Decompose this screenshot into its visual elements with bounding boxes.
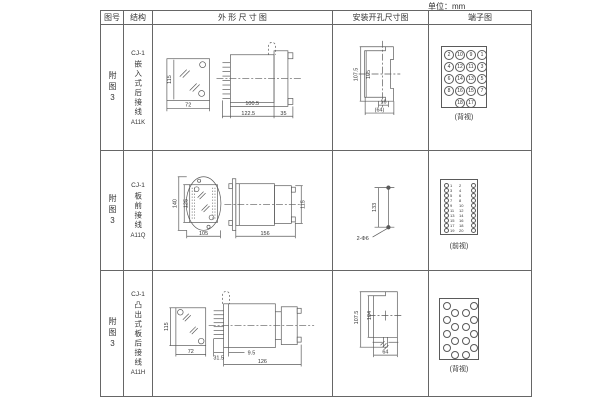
- terminal-circle: 13: [466, 74, 476, 84]
- cell-mount-row2: 133 2-Φ6: [333, 151, 429, 271]
- cell-terminal-row1: 210914121136141358161571817 (背视): [429, 25, 531, 151]
- mount-drawing-row1: 107.5 105 16 (64): [333, 25, 428, 150]
- dim-inner-height: 125: [184, 199, 190, 208]
- dim-outer-height: 140: [172, 199, 178, 208]
- cell-mount-row1: 107.5 105 16 (64): [333, 25, 429, 151]
- terminal-circle: [451, 309, 459, 317]
- terminal-circle: 7: [477, 86, 487, 96]
- side-view: 31.5 9.5 126: [209, 291, 314, 366]
- header-outline: 外 形 尺 寸 图: [153, 11, 333, 25]
- terminal-circle: [470, 330, 478, 338]
- dim-width: 64: [382, 350, 388, 356]
- structure-desc: 凸出式板后接线: [134, 301, 142, 368]
- dim-width: 72: [185, 102, 191, 108]
- terminal-circle: 6: [444, 74, 454, 84]
- cell-fig-row2: 附图3: [101, 151, 124, 271]
- terminal-circle: [443, 316, 451, 324]
- header-struct: 结构: [124, 11, 153, 25]
- cell-fig-row1: 附图3: [101, 25, 124, 151]
- terminal-circle: 18: [455, 98, 465, 108]
- terminal-board: 1234567891011121314151617181920: [440, 179, 478, 235]
- terminal-circle: 11: [466, 62, 476, 72]
- figure-number: 附图3: [108, 71, 116, 105]
- outline-drawing-row1: 115 72: [153, 25, 332, 150]
- header-fig: 图号: [101, 11, 124, 25]
- terminal-circle: [470, 344, 478, 352]
- cell-outline-row1: 115 72: [153, 25, 333, 151]
- terminal-circle: 16: [455, 86, 465, 96]
- cell-struct-row1: CJ-1 嵌入式后接线 A11K: [124, 25, 153, 151]
- terminal-circle: 4: [444, 62, 454, 72]
- spec-table: 图号 结构 外 形 尺 寸 图 安装开孔尺寸图 端子图 附图3 CJ-1 嵌入式…: [100, 10, 532, 397]
- outline-drawing-row3: 115 72: [153, 271, 332, 396]
- dim-flange: 35: [280, 111, 286, 117]
- terminal-circle: 12: [455, 62, 465, 72]
- dim-hole-spacing: 133: [372, 203, 378, 212]
- type-code: A11Q: [131, 233, 146, 239]
- terminal-circle: 17: [466, 98, 476, 108]
- type-code: A11K: [131, 120, 145, 126]
- dim-height: 115: [164, 322, 170, 331]
- mount-drawing-row2: 133 2-Φ6: [333, 151, 428, 270]
- terminal-circle: [462, 337, 470, 345]
- terminal-circle: 1: [477, 50, 487, 60]
- front-view: 115 72: [167, 59, 210, 112]
- dim-slot-width: 16: [380, 100, 386, 106]
- dim-width: 72: [188, 349, 194, 355]
- cell-fig-row3: 附图3: [101, 271, 124, 396]
- terminal-caption: (背视): [431, 364, 487, 374]
- terminal-circle: 8: [444, 86, 454, 96]
- dim-inner-height: 105: [366, 70, 372, 79]
- dim-total-length: 122.5: [241, 111, 255, 117]
- dim-body-length: 100.5: [245, 101, 259, 107]
- terminal-board: [439, 298, 479, 360]
- cell-terminal-row3: (背视): [429, 271, 531, 396]
- header-terminal: 端子图: [429, 11, 531, 25]
- dim-offset: 9.5: [248, 351, 256, 357]
- figure-number: 附图3: [108, 194, 116, 228]
- terminal-circle: [443, 344, 451, 352]
- dim-overall-width: (64): [375, 108, 385, 114]
- terminal-board: 210914121136141358161571817: [441, 46, 487, 108]
- hole-callout: 2-Φ6: [357, 236, 369, 242]
- dim-pin-length: 31.5: [213, 356, 224, 362]
- drawing-sheet: 单位：mm 图号 结构 外 形 尺 寸 图 安装开孔尺寸图 端子图 附图3 CJ…: [0, 0, 600, 400]
- dim-outer-height: 107.5: [354, 68, 360, 82]
- dim-outer-height: 107.5: [354, 311, 360, 325]
- structure-desc: 板前接线: [134, 192, 142, 230]
- model-label: CJ-1: [131, 291, 145, 298]
- terminal-number: 20: [459, 228, 463, 233]
- terminal-circle: 15: [466, 86, 476, 96]
- side-view: 100.5 122.5 35: [216, 42, 301, 118]
- terminal-circle: 2: [444, 50, 454, 60]
- terminal-circle: [470, 302, 478, 310]
- dim-width: 105: [199, 231, 208, 237]
- dim-height: 115: [301, 200, 307, 209]
- figure-number: 附图3: [108, 317, 116, 351]
- model-label: CJ-1: [131, 182, 145, 189]
- terminal-circle: [451, 323, 459, 331]
- cell-struct-row3: CJ-1 凸出式板后接线 A11H: [124, 271, 153, 396]
- terminal-caption: (前视): [431, 241, 487, 251]
- terminal-circle: 10: [455, 50, 465, 60]
- header-mount: 安装开孔尺寸图: [333, 11, 429, 25]
- front-view: 115 72: [164, 308, 206, 357]
- terminal-circle: 14: [455, 74, 465, 84]
- cell-outline-row3: 115 72: [153, 271, 333, 396]
- terminal-circle: [462, 323, 470, 331]
- cell-mount-row3: 64 107.5 104: [333, 271, 429, 396]
- side-view: 156 115: [224, 179, 306, 239]
- dim-depth: 156: [261, 231, 270, 237]
- terminal-circle: [451, 351, 459, 359]
- type-code: A11H: [131, 370, 146, 376]
- dim-depth: 126: [258, 359, 267, 365]
- outline-drawing-row2: 140 125 105: [153, 151, 332, 270]
- cell-terminal-row2: 1234567891011121314151617181920 (前视): [429, 151, 531, 271]
- terminal-circle: [462, 351, 470, 359]
- terminal-circle: [462, 309, 470, 317]
- terminal-caption: (背视): [435, 112, 493, 122]
- terminal-circle: [443, 330, 451, 338]
- terminal-circle: [444, 228, 449, 233]
- terminal-circle: 3: [477, 62, 487, 72]
- mount-drawing-row3: 64 107.5 104: [333, 271, 428, 396]
- terminal-circle: [451, 337, 459, 345]
- terminal-number: 19: [450, 228, 454, 233]
- terminal-circle: 9: [466, 50, 476, 60]
- cell-struct-row2: CJ-1 板前接线 A11Q: [124, 151, 153, 271]
- terminal-circle: [471, 228, 476, 233]
- dim-height: 115: [167, 75, 173, 84]
- cell-outline-row2: 140 125 105: [153, 151, 333, 271]
- dim-inner-height: 104: [367, 311, 373, 320]
- structure-desc: 嵌入式后接线: [134, 60, 142, 117]
- terminal-circle: [470, 316, 478, 324]
- model-label: CJ-1: [131, 50, 145, 57]
- front-view: 140 125 105: [172, 177, 221, 238]
- terminal-circle: [443, 302, 451, 310]
- terminal-circle: 5: [477, 74, 487, 84]
